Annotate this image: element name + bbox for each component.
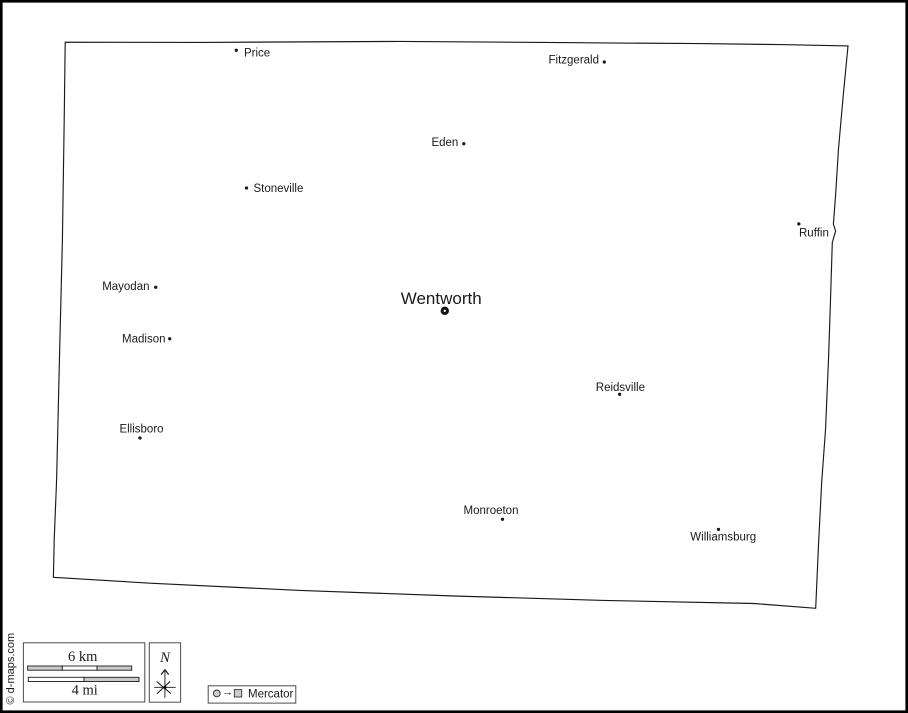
svg-text:Madison: Madison: [122, 334, 165, 346]
svg-text:Ruffin: Ruffin: [799, 227, 829, 239]
svg-text:Williamsburg: Williamsburg: [690, 531, 756, 543]
svg-text:Ellisboro: Ellisboro: [119, 424, 163, 436]
svg-text:Monroeton: Monroeton: [464, 505, 519, 517]
svg-text:Reidsville: Reidsville: [596, 382, 645, 394]
svg-text:© d-maps.com: © d-maps.com: [5, 633, 17, 705]
svg-text:Stoneville: Stoneville: [254, 183, 304, 195]
svg-text:Eden: Eden: [431, 137, 458, 149]
svg-text:→: →: [222, 687, 234, 699]
svg-text:6 km: 6 km: [68, 649, 98, 665]
svg-text:Mercator: Mercator: [248, 688, 294, 700]
svg-text:Wentworth: Wentworth: [401, 289, 482, 308]
svg-text:Mayodan: Mayodan: [102, 281, 149, 293]
svg-text:Fitzgerald: Fitzgerald: [549, 55, 600, 67]
svg-text:4 mi: 4 mi: [72, 682, 98, 698]
svg-text:Price: Price: [244, 48, 270, 60]
svg-text:N: N: [159, 650, 171, 666]
